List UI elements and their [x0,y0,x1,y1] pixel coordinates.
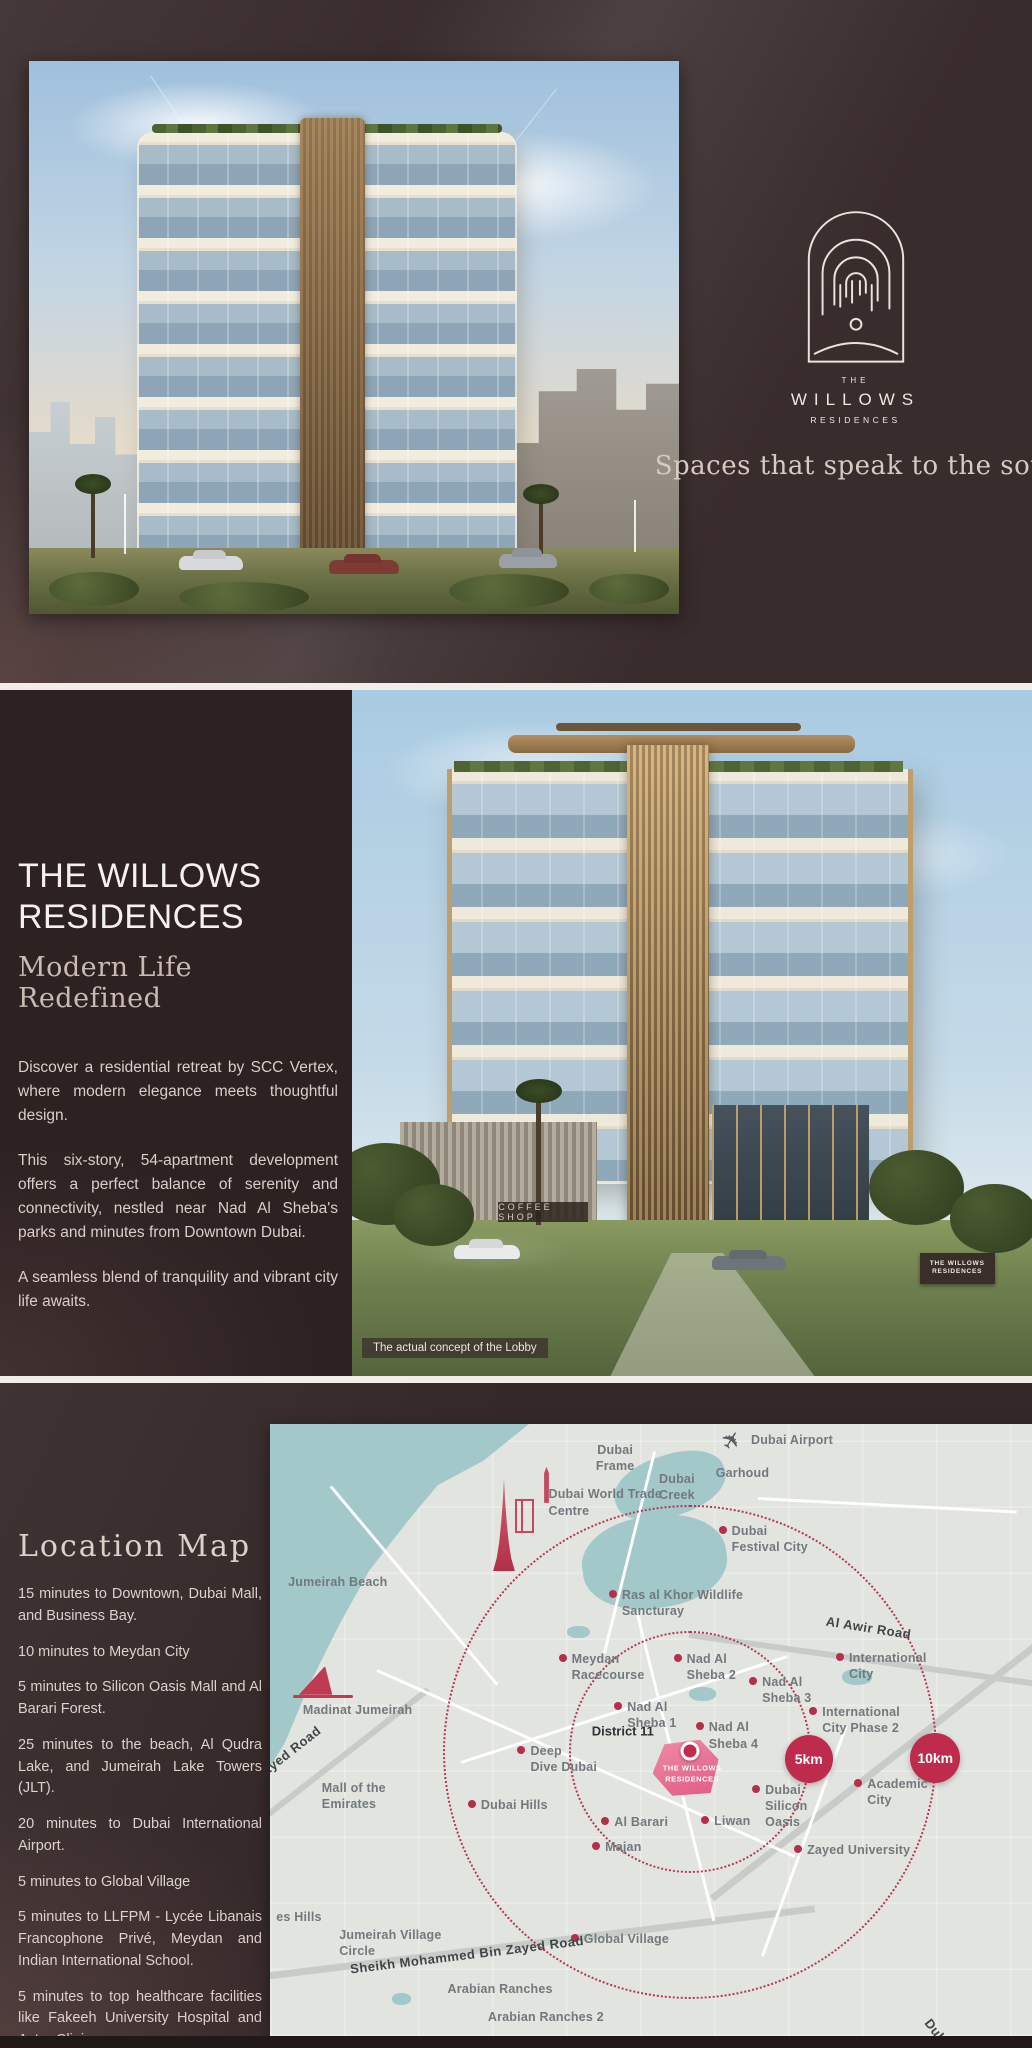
map-label-text: Deep Dive Dubai [530,1743,597,1776]
map-label-dubai-world-trade-centre: Dubai World Trade Centre [548,1486,662,1519]
map-label-text: Academic City [867,1776,928,1809]
brand-block: THE WILLOWS RESIDENCES Spaces that speak… [679,198,1032,481]
poi-dot-icon [614,1702,622,1710]
shrub [589,574,669,604]
bottom-bar [0,2036,1032,2048]
poi-dot-icon [592,1842,600,1850]
location-item: 25 minutes to the beach, Al Qudra Lake, … [18,1735,262,1800]
map-label-al-barari: Al Barari [601,1814,668,1830]
poi-dot-icon [696,1722,704,1730]
map-label-international-city-phase-2: International City Phase 2 [809,1704,900,1737]
poi-dot-icon [468,1800,476,1808]
burj-al-arab-icon [293,1666,353,1698]
map-label-text: Liwan [714,1813,750,1829]
project-sign-board: THE WILLOWS RESIDENCES [920,1253,995,1285]
poi-dot-icon [609,1590,617,1598]
car [454,1245,520,1259]
map-label-text: Majan [605,1839,641,1855]
map-label-text: Duba [922,2016,955,2036]
map-label-text: Zayed University [807,1842,910,1858]
map-label-text: Meydan Racecourse [572,1651,645,1684]
map-label-text: Arabian Ranches 2 [488,2010,604,2024]
map-label-nad-al-sheba-1: Nad Al Sheba 1 [614,1699,676,1732]
intro-section: THE WILLOWS RESIDENCES Modern Life Redef… [0,690,1032,1376]
map-label-text: Dubai Festival City [732,1523,808,1556]
poi-dot-icon [794,1845,802,1853]
logo-word-residences: RESIDENCES [810,415,900,425]
brochure-page: THE WILLOWS RESIDENCES Spaces that speak… [0,0,1032,2048]
map-label-text: Mall of the Emirates [322,1781,386,1811]
map-label-text: International City [849,1650,927,1683]
hero-section: THE WILLOWS RESIDENCES Spaces that speak… [0,0,1032,683]
willows-site-label: THE WILLOWS RESIDENCES [663,1764,722,1785]
intro-paragraphs: Discover a residential retreat by SCC Ve… [18,1056,338,1314]
map-label-text: Madinat Jumeirah [303,1703,412,1717]
map-label-text: Dubai Frame [596,1442,635,1472]
shrub [49,572,139,606]
brand-tagline: Spaces that speak to the soul [655,451,1032,481]
map-label-zayed-university: Zayed University [794,1842,910,1858]
map-label-dubai-airport: Dubai Airport [751,1432,833,1448]
map-label-text: Jumeirah Beach [288,1575,387,1589]
car [712,1256,786,1270]
rooftop-pergola [556,723,801,731]
map-label-text: Al Barari [614,1814,668,1830]
map-label-dubai-creek: Dubai Creek [659,1471,695,1504]
logo-word-willows: WILLOWS [791,390,920,410]
map-label-international-city: International City [836,1650,927,1683]
willows-arch-logo-icon [797,198,915,366]
shrub [449,574,569,608]
map-label-text: Dubai Hills [481,1797,548,1813]
palm-tree [91,488,95,558]
tree [393,1184,475,1246]
poi-dot-icon [674,1654,682,1662]
car [179,556,243,570]
map-road [758,1497,1017,1513]
photo-caption: The actual concept of the Lobby [362,1338,548,1358]
intro-paragraph: Discover a residential retreat by SCC Ve… [18,1056,338,1128]
location-item: 15 minutes to Downtown, Dubai Mall, and … [18,1584,262,1628]
map-label-meydan-racecourse: Meydan Racecourse [559,1651,645,1684]
pond [392,1993,411,2005]
location-heading: Location Map [18,1529,262,1564]
map-label-es-hills: es Hills [276,1909,321,1925]
intro-paragraph: A seamless blend of tranquility and vibr… [18,1266,338,1314]
lobby-concept-photo: COFFEE SHOP THE WILLOWS RESIDENCES The a… [352,690,1032,1376]
map-label-ras-al-khor-wildlife-sancturay: Ras al Khor Wildlife Sancturay [609,1587,743,1620]
lobby-glass-entrance [712,1105,868,1225]
map-label-liwan: Liwan [701,1813,750,1829]
map-label-arabian-ranches: Arabian Ranches [448,1981,553,1997]
poi-dot-icon [701,1816,709,1824]
map-label-text: Dubai Silicon Oasis [765,1782,807,1831]
map-label-text: Dubai World Trade Centre [548,1487,662,1517]
building-illustration [137,132,517,556]
airplane-icon: ✈ [714,1425,749,1457]
logo-word-the: THE [842,376,870,385]
map-label-arabian-ranches-2: Arabian Ranches 2 [488,2009,604,2025]
intro-text-panel: THE WILLOWS RESIDENCES Modern Life Redef… [18,690,338,1335]
map-label-text: Nad Al Sheba 2 [687,1651,736,1684]
map-label-text: Dubai Airport [751,1433,833,1447]
poi-dot-icon [854,1779,862,1787]
location-section: Location Map 15 minutes to Downtown, Dub… [0,1383,1032,2036]
map-label-text: Nad Al Sheba 3 [762,1674,811,1707]
building-central-column [300,118,365,556]
map-label-nad-al-sheba-3: Nad Al Sheba 3 [749,1674,811,1707]
distance-badge-5km: 5km [785,1735,833,1783]
map-label-text: International City Phase 2 [822,1704,900,1737]
map-label-deep-dive-dubai: Deep Dive Dubai [517,1743,597,1776]
map-label-garhoud: Garhoud [716,1465,769,1481]
tree [950,1184,1032,1253]
poi-dot-icon [517,1746,525,1754]
poi-dot-icon [559,1654,567,1662]
hero-building-photo [29,61,679,614]
coffee-shop-sign: COFFEE SHOP [498,1202,588,1222]
location-item: 5 minutes to Global Village [18,1872,262,1894]
location-item: 5 minutes to LLFPM - Lycée Libanais Fran… [18,1907,262,1972]
map-label-text: es Hills [276,1910,321,1924]
map-label-jumeirah-beach: Jumeirah Beach [288,1574,387,1590]
map-label-text: Global Village [584,1931,669,1947]
poi-dot-icon [752,1785,760,1793]
poi-dot-icon [809,1707,817,1715]
poi-dot-icon [836,1653,844,1661]
map-label-majan: Majan [592,1839,641,1855]
page-title: THE WILLOWS RESIDENCES [18,856,338,938]
light-pole [124,494,126,554]
location-map: ✈ THE WILLOWS RESIDENCES District 11 5km… [270,1424,1032,2036]
section-divider [0,1376,1032,1383]
map-label-nad-al-sheba-4: Nad Al Sheba 4 [696,1719,758,1752]
location-list: 15 minutes to Downtown, Dubai Mall, and … [18,1584,262,2048]
location-text-panel: Location Map 15 minutes to Downtown, Dub… [18,1383,262,2048]
poi-dot-icon [601,1817,609,1825]
map-label-text: Ras al Khor Wildlife Sancturay [622,1587,743,1620]
map-label-madinat-jumeirah: Madinat Jumeirah [303,1702,412,1718]
location-item: 20 minutes to Dubai International Airpor… [18,1814,262,1858]
map-label-text: Nad Al Sheba 1 [627,1699,676,1732]
intro-subtitle: Modern Life Redefined [18,952,338,1014]
poi-dot-icon [749,1677,757,1685]
dubai-frame-icon [515,1499,534,1533]
section-divider [0,683,1032,690]
car [499,554,557,568]
map-label-academic-city: Academic City [854,1776,928,1809]
map-label-dubai-festival-city: Dubai Festival City [719,1523,808,1556]
car [329,560,399,574]
map-label-global-village: Global Village [571,1931,669,1947]
location-item: 10 minutes to Meydan City [18,1642,262,1664]
map-label-nad-al-sheba-2: Nad Al Sheba 2 [674,1651,736,1684]
burj-khalifa-icon [491,1479,517,1571]
map-label-dubai-road-edge: Duba [920,2016,955,2036]
palm-tree [539,498,543,554]
map-label-text: Nad Al Sheba 4 [709,1719,758,1752]
shrub [179,582,309,612]
map-label-dubai-hills: Dubai Hills [468,1797,548,1813]
map-label-text: Garhoud [716,1466,769,1480]
map-label-dubai-frame: Dubai Frame [596,1441,635,1474]
building-central-column [627,745,709,1232]
poi-dot-icon [719,1526,727,1534]
map-label-dubai-silicon-oasis: Dubai Silicon Oasis [752,1782,807,1831]
map-label-mall-of-the-emirates: Mall of the Emirates [322,1780,386,1813]
location-item: 5 minutes to Silicon Oasis Mall and Al B… [18,1677,262,1721]
map-label-text: Arabian Ranches [448,1982,553,1996]
intro-paragraph: This six-story, 54-apartment development… [18,1149,338,1245]
light-pole [634,500,636,552]
map-label-text: Dubai Creek [659,1472,695,1502]
